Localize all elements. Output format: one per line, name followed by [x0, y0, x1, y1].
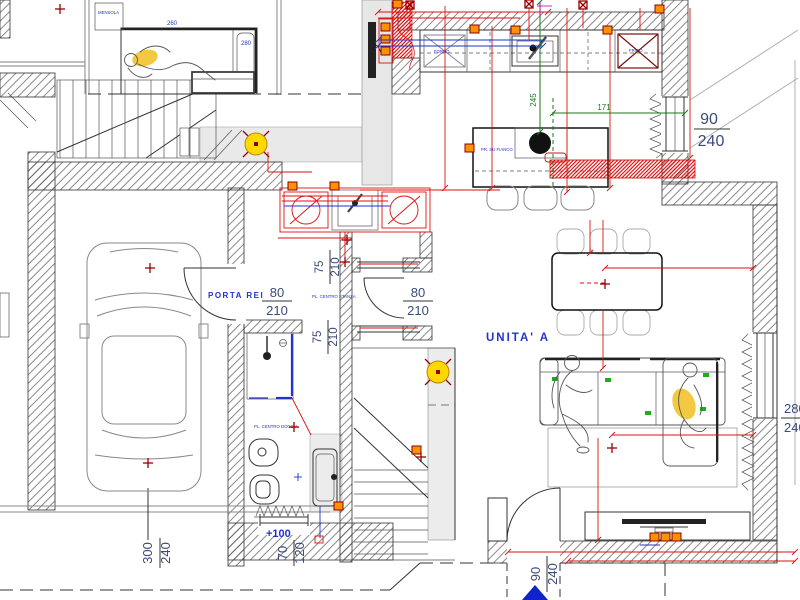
- ceiling-point-marker: [55, 4, 617, 462]
- ceiling-light-icon: [243, 131, 269, 157]
- car: [80, 243, 208, 491]
- bidet: [249, 439, 278, 466]
- garage-door-width: 300: [140, 542, 155, 564]
- floor-plan: MENSOLA 260 280 FORNO FRIGO: [0, 0, 800, 600]
- fire-door-label: PORTA REI: [208, 291, 264, 300]
- living-window-height: 240: [784, 420, 800, 435]
- power-outlet-icon: [381, 47, 390, 55]
- living-door-height: 210: [407, 303, 429, 318]
- power-outlet-icon: [330, 182, 339, 190]
- power-outlet-icon: [465, 144, 474, 152]
- bed-depth-label: 280: [241, 41, 252, 47]
- power-outlet-icon: [655, 5, 664, 13]
- room-light-label: PL. CENTRO STANZA: [312, 294, 356, 299]
- rug: [548, 428, 737, 487]
- bed-width-label: 260: [167, 21, 178, 27]
- power-outlet-icon: [672, 533, 681, 541]
- new-beam-red: [550, 160, 695, 178]
- bath-window-height: 120: [292, 542, 307, 564]
- ceiling-light-icon: [425, 359, 451, 385]
- power-outlet-icon: [288, 182, 297, 190]
- entry-door-width: 90: [528, 567, 543, 581]
- unit-label: UNITA' A: [486, 332, 550, 344]
- radiator-kitchen: [650, 94, 662, 158]
- power-outlet-icon: [650, 533, 659, 541]
- passage-top-width: 75: [314, 261, 326, 274]
- power-outlet-icon: [470, 25, 479, 33]
- oven-label: FORNO: [434, 49, 450, 54]
- power-outlet-icon: [334, 502, 343, 510]
- entry-door-height: 240: [545, 563, 560, 585]
- island-depth-dim: 245: [529, 93, 538, 107]
- power-outlet-icon: [412, 446, 421, 454]
- power-outlet-icon: [603, 26, 612, 34]
- living-window: [752, 332, 778, 419]
- dining-set: [552, 229, 662, 335]
- power-outlet-icon: [511, 26, 520, 34]
- shower: [247, 333, 293, 399]
- island-span-dim: 171: [597, 103, 611, 112]
- power-outlet-icon: [381, 23, 390, 31]
- passage-bottom-width: 75: [312, 331, 324, 344]
- entry-arrow-icon: [522, 585, 548, 600]
- tv-cabinet: [585, 512, 750, 545]
- kitchen-window: [661, 96, 689, 153]
- power-outlet-icon: [381, 35, 390, 43]
- fire-door-width: 80: [270, 285, 284, 300]
- passage-top-height: 210: [330, 257, 342, 276]
- kitchen-counter: FORNO FRIGO: [420, 30, 662, 72]
- shelf-label: MENSOLA: [98, 10, 119, 15]
- entry-door: [507, 488, 560, 541]
- boundary-diagonal: [390, 563, 420, 590]
- passage-bottom-height: 210: [328, 327, 340, 346]
- kitchen-window-width: 90: [700, 111, 718, 128]
- power-outlet-icon: [393, 0, 402, 8]
- fire-door-height: 210: [266, 303, 288, 318]
- kitchen-window-height: 240: [698, 133, 725, 150]
- living-door-width: 80: [411, 285, 425, 300]
- fridge-label: FRIGO: [629, 48, 643, 53]
- living-door: [364, 278, 404, 318]
- garage-door-height: 240: [158, 542, 173, 564]
- buzzer-icon: [406, 0, 587, 9]
- island-outlet-label: PR. SU FIANCO: [481, 147, 513, 152]
- laundry-counter: [280, 182, 430, 258]
- living-window-width: 280: [784, 401, 800, 416]
- kitchen-sink: [512, 36, 558, 66]
- toilet: [250, 475, 279, 504]
- level-label: +100: [266, 528, 291, 540]
- radiator-bath: [256, 506, 304, 516]
- power-outlet-icon: [661, 533, 670, 541]
- sofa-set: [540, 356, 737, 488]
- bath-window-width: 70: [275, 546, 290, 560]
